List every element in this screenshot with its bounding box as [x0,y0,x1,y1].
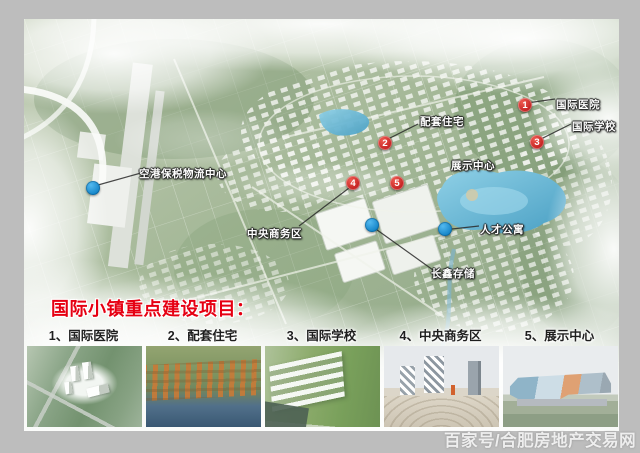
label-changxin: 长鑫存储 [431,266,475,281]
plaza-shape [384,396,499,427]
cbd-dot-icon [365,218,379,232]
label-talent: 人才公寓 [480,222,524,237]
housing-blocks [146,359,261,401]
legend-num: 5、 [525,329,544,343]
legend-num: 4、 [400,329,419,343]
watermark: 百家号/合肥房地产交易网 [444,427,636,451]
marker-1-hospital-icon: 1 [518,98,532,112]
label-cbd: 中央商务区 [247,226,302,241]
building-base-shape [517,399,607,406]
marker-5-exhibition-icon: 5 [390,176,404,190]
thumbnail-school [265,346,380,427]
thumbnail-hospital [27,346,142,427]
legend-name: 配套住宅 [187,329,237,343]
thumbnail-exhibition [503,346,618,427]
legend-name: 国际学校 [306,329,356,343]
thumbnail-housing [146,346,261,427]
talent-dot-icon [438,222,452,236]
building-shape [86,383,110,397]
legend-item-exhibition: 5、展示中心 [500,325,619,344]
legend-name: 展示中心 [544,329,594,343]
label-logistics: 空港保税物流中心 [139,166,227,181]
building-shape [82,361,93,379]
exhibition-hall-shape [510,369,611,401]
legend-item-school: 3、国际学校 [262,325,381,344]
legend-title: 国际小镇重点建设项目： [51,295,255,321]
tower-shape [400,366,415,395]
legend-name: 中央商务区 [419,329,482,343]
thumbnail-cbd [384,346,499,427]
marker-2-housing-icon: 2 [378,136,392,150]
legend-item-cbd: 4、中央商务区 [381,325,500,344]
tower-shape [468,361,481,395]
marker-3-school-icon: 3 [530,135,544,149]
label-school: 国际学校 [572,119,616,134]
logistics-dot-icon [86,181,100,195]
legend-num: 3、 [287,329,306,343]
legend-row: 1、国际医院 2、配套住宅 3、国际学校 4、中央商务区 5、展示中心 [24,325,619,344]
label-hospital: 国际医院 [556,97,600,112]
marker-4-cbd-icon: 4 [346,176,360,190]
thumbnail-row [27,346,618,427]
masterplan-photo: 1 2 3 4 5 国际医院 国际学校 配套住宅 展示中心 空港保税物流中心 中… [24,19,619,431]
page: { "background_color": "#bdbdbd", "map": … [0,0,640,453]
legend-item-hospital: 1、国际医院 [24,325,143,344]
legend-name: 国际医院 [68,329,118,343]
tower-shape [424,356,444,393]
legend-num: 2、 [168,329,187,343]
legend-num: 1、 [49,329,68,343]
label-exhibition: 展示中心 [451,158,495,173]
legend-item-housing: 2、配套住宅 [143,325,262,344]
building-shape [70,366,80,382]
sculpture-shape [451,385,455,395]
label-housing: 配套住宅 [420,114,464,129]
building-shape [64,382,73,395]
